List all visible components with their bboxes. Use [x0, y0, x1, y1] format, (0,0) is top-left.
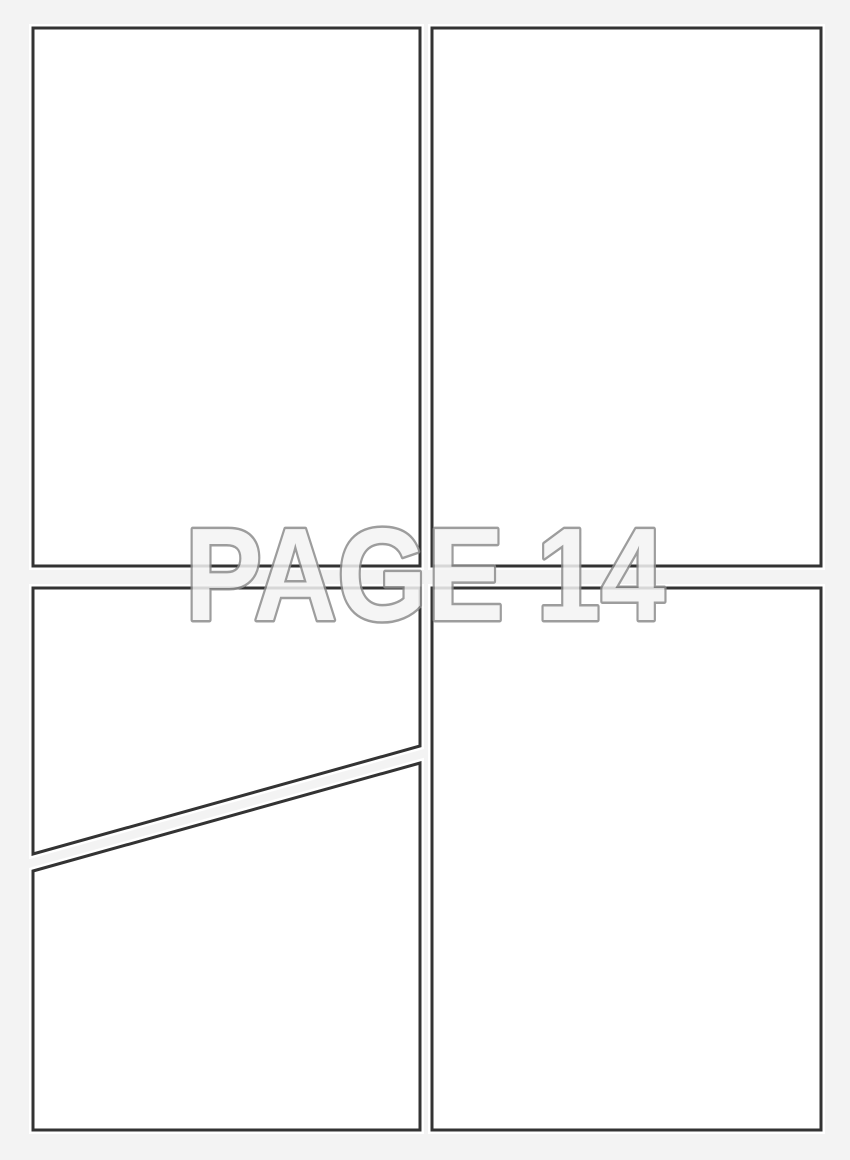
page-number-label: PAGE 14 — [185, 501, 665, 648]
panel-bottom-right-frame — [432, 588, 821, 1130]
panel-top-left-frame — [33, 28, 420, 566]
panel-top-right-frame — [432, 28, 821, 566]
panel-top-left — [33, 28, 420, 566]
comic-page-canvas: PAGE 14 — [0, 0, 850, 1160]
comic-page-template: PAGE 14 — [0, 0, 850, 1160]
panel-top-right — [432, 28, 821, 566]
panel-bottom-right — [432, 588, 821, 1130]
